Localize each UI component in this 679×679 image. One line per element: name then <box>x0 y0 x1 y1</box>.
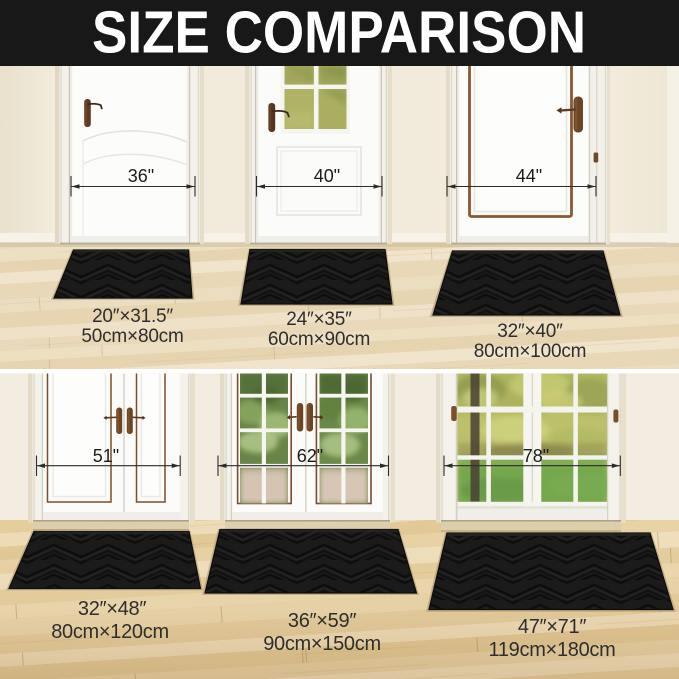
svg-text:80cm×100cm: 80cm×100cm <box>474 341 587 362</box>
svg-text:44": 44" <box>516 166 542 186</box>
svg-text:20″×31.5″: 20″×31.5″ <box>92 306 173 327</box>
svg-text:62": 62" <box>297 446 323 466</box>
svg-text:80cm×120cm: 80cm×120cm <box>51 621 169 643</box>
svg-text:60cm×90cm: 60cm×90cm <box>268 329 370 350</box>
svg-text:50cm×80cm: 50cm×80cm <box>81 326 183 347</box>
svg-text:36″×59″: 36″×59″ <box>288 610 356 632</box>
svg-text:32″×40″: 32″×40″ <box>497 321 563 342</box>
svg-text:78": 78" <box>523 446 549 466</box>
svg-text:32″×48″: 32″×48″ <box>78 598 146 620</box>
svg-text:36": 36" <box>128 166 154 186</box>
svg-text:SIZE COMPARISON: SIZE COMPARISON <box>92 0 586 66</box>
svg-text:47″×71″: 47″×71″ <box>518 616 586 638</box>
svg-text:40": 40" <box>314 166 340 186</box>
svg-text:119cm×180cm: 119cm×180cm <box>489 639 616 661</box>
svg-text:51": 51" <box>93 446 119 466</box>
svg-text:90cm×150cm: 90cm×150cm <box>263 633 381 655</box>
svg-text:24″×35″: 24″×35″ <box>286 309 352 330</box>
